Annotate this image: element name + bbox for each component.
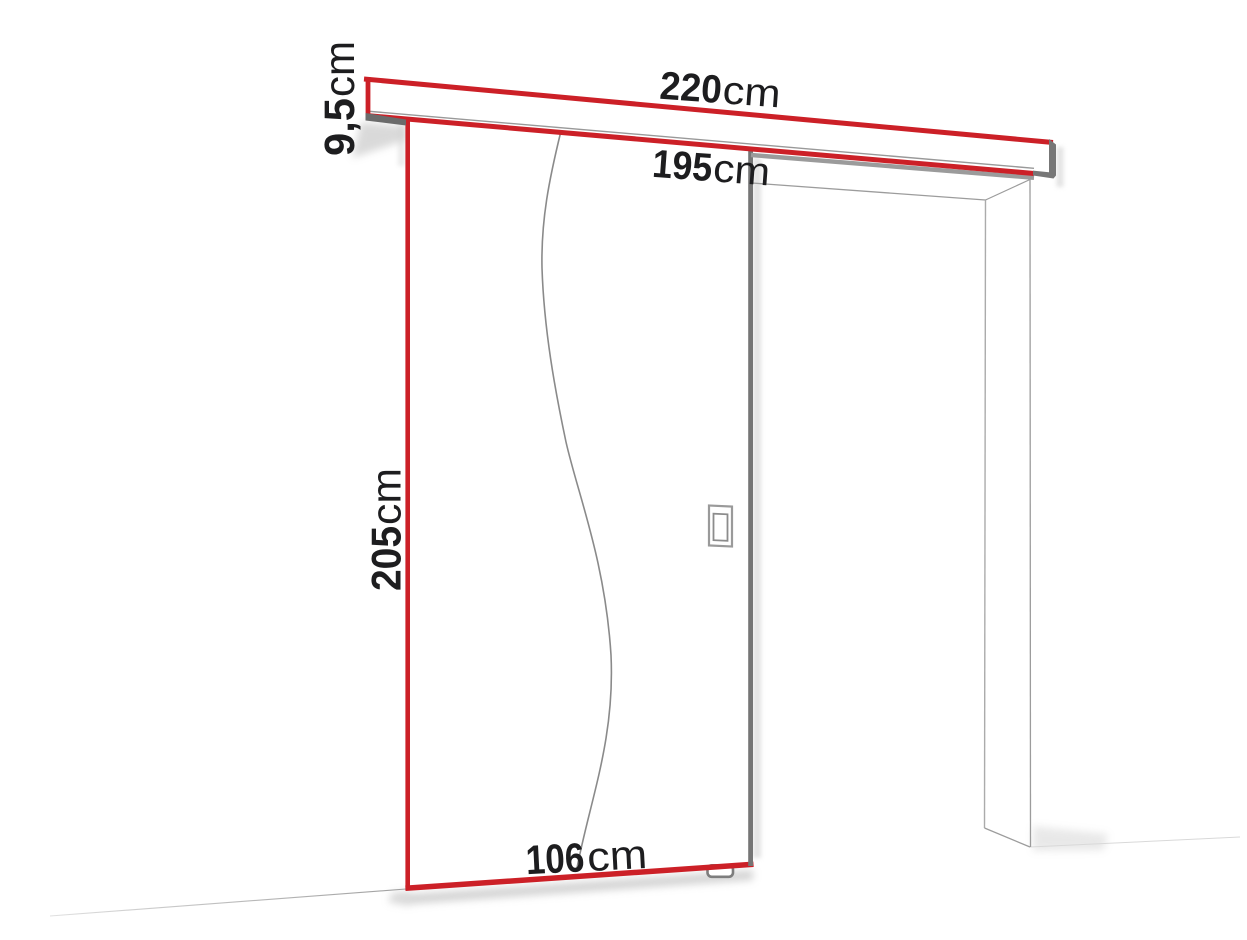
svg-text:cm: cm [586,831,648,880]
svg-text:cm: cm [363,468,410,525]
svg-text:cm: cm [317,41,364,97]
svg-text:220: 220 [658,64,723,112]
svg-text:cm: cm [712,146,772,194]
svg-text:106: 106 [525,834,586,883]
svg-text:195: 195 [651,142,714,190]
svg-text:cm: cm [721,68,782,116]
svg-text:9,5: 9,5 [317,98,364,156]
svg-text:205: 205 [363,526,410,591]
